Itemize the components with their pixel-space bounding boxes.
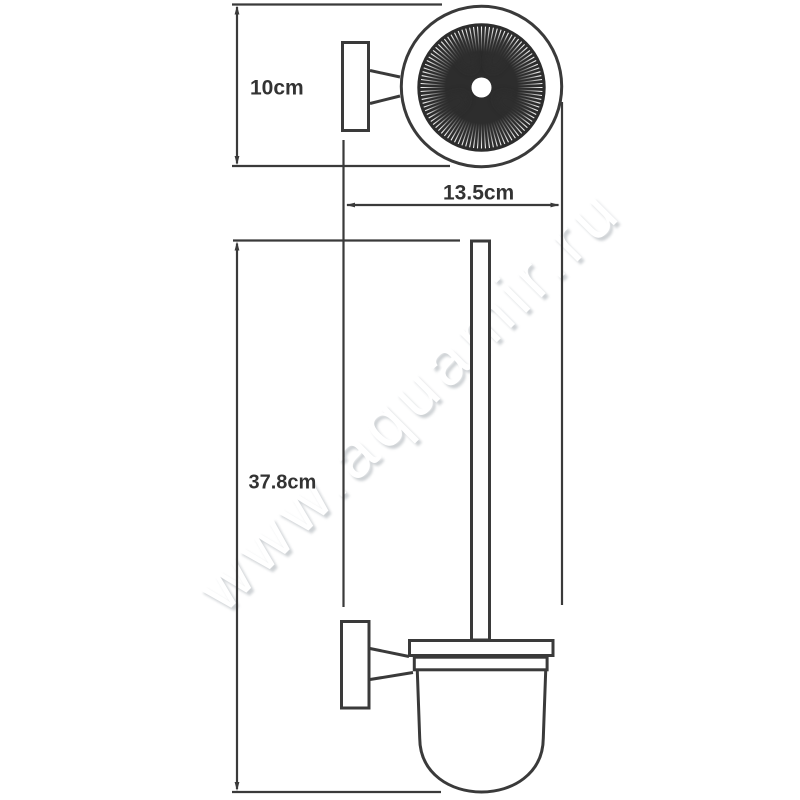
svg-text:www.aquamir.ru: www.aquamir.ru [181, 171, 635, 625]
svg-text:13.5cm: 13.5cm [443, 182, 514, 205]
svg-text:10cm: 10cm [250, 77, 304, 100]
svg-text:37.8cm: 37.8cm [249, 472, 317, 494]
